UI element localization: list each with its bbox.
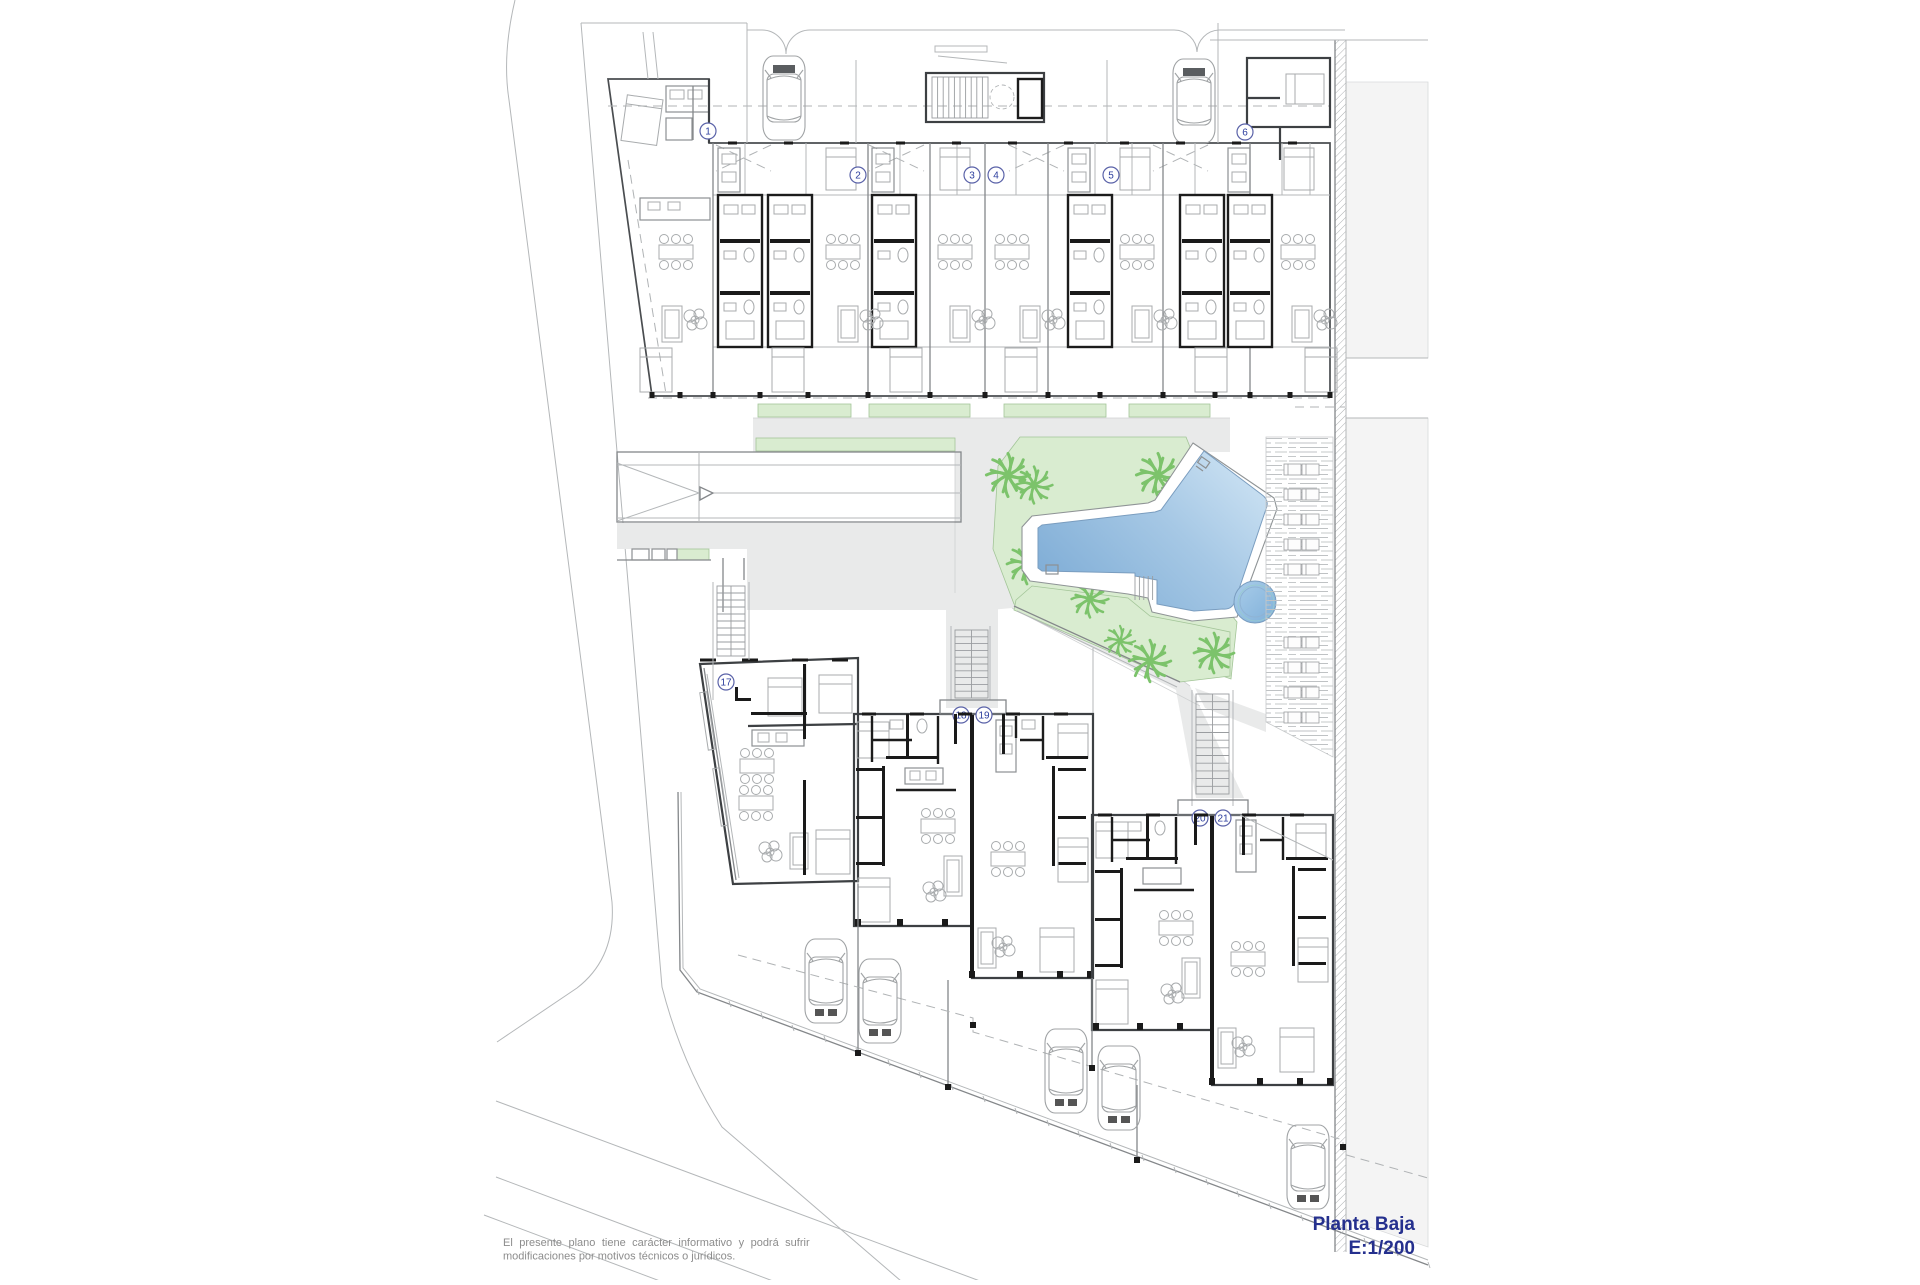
svg-text:El presente plano tiene caráct: El presente plano tiene carácter informa… (503, 1237, 810, 1249)
svg-text:2: 2 (855, 171, 861, 182)
svg-text:21: 21 (1217, 814, 1229, 825)
svg-text:19: 19 (978, 711, 990, 722)
svg-text:6: 6 (1242, 128, 1248, 139)
svg-text:1: 1 (705, 127, 711, 138)
svg-text:18: 18 (955, 711, 967, 722)
svg-text:E:1/200: E:1/200 (1348, 1238, 1415, 1259)
svg-text:3: 3 (969, 171, 975, 182)
svg-text:17: 17 (720, 678, 732, 689)
svg-text:5: 5 (1108, 171, 1114, 182)
svg-text:4: 4 (993, 171, 999, 182)
svg-text:modificaciones por motivos téc: modificaciones por motivos técnicos o ju… (503, 1251, 735, 1263)
svg-text:Planta Baja: Planta Baja (1313, 1214, 1416, 1235)
